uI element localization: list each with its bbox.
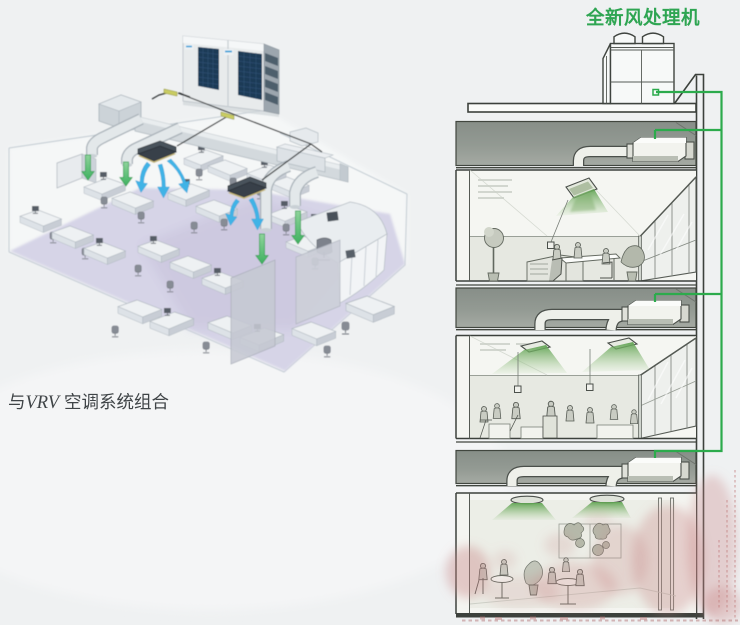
svg-text:全新风处理机: 全新风处理机 (585, 7, 700, 28)
svg-text:与VRV 空调系统组合: 与VRV 空调系统组合 (8, 392, 169, 413)
